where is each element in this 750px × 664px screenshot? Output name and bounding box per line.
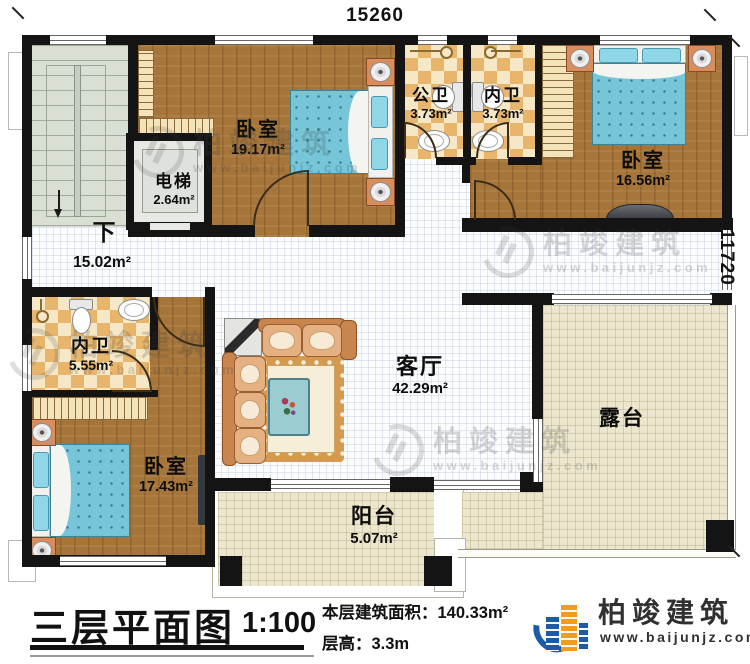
- plan-scale: 1:100: [242, 607, 316, 640]
- sofa-cushion: [234, 356, 266, 392]
- room-label-public-bath: 公卫 3.73m²: [398, 82, 464, 126]
- sink-icon: [118, 299, 150, 321]
- room-area: 19.17m²: [231, 142, 285, 159]
- window-stairs-top: [50, 35, 106, 45]
- stair-center-rail: [74, 65, 81, 217]
- wall-bedroom2-entry: [462, 157, 470, 183]
- wall-terrace-top-a: [462, 293, 554, 305]
- sofa-cushion: [262, 324, 302, 357]
- room-name: 公卫: [412, 86, 450, 106]
- toilet-icon: [64, 299, 96, 335]
- room-area: 15.02m²: [73, 254, 131, 272]
- room-area: 5.55m²: [69, 357, 113, 374]
- wall-bath-bottom-a: [395, 157, 404, 165]
- brand-logo: 柏竣建筑 www.baijunjz.com: [534, 591, 744, 657]
- pillow: [33, 452, 49, 488]
- outer-wall-right: [722, 35, 732, 230]
- room-name: 内卫: [484, 86, 522, 106]
- balcony-pillar-right: [424, 556, 452, 586]
- wall-living-terrace: [532, 305, 543, 419]
- sofa-cushion: [302, 324, 342, 357]
- room-label-bedroom1: 卧室 19.17m²: [196, 116, 320, 162]
- wall-bedroom3-right: [205, 287, 215, 567]
- window-living-south-b: [434, 480, 520, 490]
- stair-down-arrow-icon: [54, 209, 62, 218]
- room-area: 16.56m²: [616, 173, 670, 190]
- flower-decor: [278, 394, 298, 418]
- room-name: 卧室: [236, 119, 280, 143]
- window-public-bath-top: [418, 35, 447, 45]
- nightstand: [366, 58, 395, 86]
- pillow: [371, 138, 388, 170]
- bed-sheet: [348, 91, 368, 173]
- room-label-bedroom2: 卧室 16.56m²: [598, 148, 688, 192]
- room-label-living: 客厅 42.29m²: [380, 352, 460, 400]
- room-area: 5.07m²: [350, 530, 398, 548]
- towel-ring-icon: [440, 46, 453, 59]
- room-label-terrace: 露台: [578, 404, 666, 434]
- nightstand: [566, 45, 594, 72]
- wall-living-south-pillar: [390, 477, 434, 492]
- terrace-floor-ext: [462, 492, 543, 551]
- wall-bedroom1-south-a: [128, 225, 255, 237]
- window-bedroom1-top: [215, 35, 313, 45]
- window-terrace-top: [552, 294, 712, 304]
- light-fixture-icon: [36, 310, 49, 323]
- room-area: 42.29m²: [392, 380, 448, 398]
- towel-bar: [410, 50, 442, 52]
- room-area: 3.73m²: [410, 106, 451, 121]
- room-area: 2.64m²: [153, 192, 194, 207]
- stairs-down-label: 下: [88, 219, 122, 247]
- window-hall-left: [22, 237, 32, 279]
- room-label-hallway: 15.02m²: [52, 252, 152, 274]
- brand-website: www.baijunjz.com: [600, 629, 750, 645]
- toilet-bowl: [72, 307, 91, 334]
- dimension-top: 15260: [305, 5, 445, 27]
- room-label-elevator: 电梯 2.64m²: [138, 170, 210, 210]
- window-ensuite-left: [22, 345, 32, 391]
- floor-height-text: 层高：3.3m: [322, 630, 409, 654]
- terrace-bottom-railing: [458, 549, 736, 558]
- floor-plan-page: 15260 11720 卧室 19.17m² 电梯 2.64m² 公卫 3.73…: [0, 0, 750, 664]
- balcony-pillar-left: [220, 556, 242, 586]
- nightstand: [688, 45, 716, 72]
- window-bedroom2-top: [600, 35, 690, 45]
- room-name: 内卫: [71, 336, 111, 357]
- wall-bath-bottom-b: [436, 157, 476, 165]
- bed-bedroom2: [592, 45, 686, 145]
- wall-bath-bottom-c: [508, 157, 542, 165]
- stair-arrow-stem: [58, 190, 60, 210]
- window-ensuite-top: [488, 35, 517, 45]
- nightstand: [28, 419, 56, 446]
- wall-living-south-a: [205, 478, 271, 491]
- room-name: 客厅: [396, 354, 444, 380]
- plan-title: 三层平面图: [30, 597, 235, 652]
- floor-area-text: 本层建筑面积：140.33m²: [322, 599, 508, 623]
- room-name: 阳台: [351, 505, 397, 530]
- room-area: 17.43m²: [139, 479, 193, 496]
- wall-hall-ensuite-left: [22, 287, 152, 297]
- room-label-bedroom3: 卧室 17.43m²: [118, 453, 214, 499]
- elevator-door-gap: [150, 223, 190, 230]
- window-living-terrace: [533, 419, 543, 482]
- room-name: 电梯: [155, 172, 193, 192]
- wall-bath-bedroom2: [535, 45, 542, 159]
- corner-tv-cabinet: [224, 318, 262, 356]
- bed-bedroom3: [30, 444, 130, 537]
- title-underline-thick: [30, 645, 304, 650]
- light-cord: [40, 299, 42, 310]
- dimension-tick: [12, 7, 25, 20]
- sofa-arm-right: [340, 320, 357, 360]
- window-bedroom3-bottom: [60, 556, 166, 566]
- down-text: 下: [93, 219, 118, 246]
- pillow: [599, 48, 638, 63]
- sofa-cushion: [234, 428, 266, 464]
- pillow: [371, 96, 388, 128]
- room-name: 露台: [599, 407, 645, 432]
- towel-bar: [491, 50, 521, 52]
- towel-ring-icon: [484, 46, 497, 59]
- room-area: 3.73m²: [482, 106, 523, 121]
- wardrobe-bedroom1-vert: [138, 50, 154, 118]
- bed-sheet: [593, 64, 685, 79]
- room-label-ensuite-top: 内卫 3.73m²: [470, 82, 536, 126]
- room-name: 卧室: [621, 150, 665, 174]
- room-label-ensuite-left: 内卫 5.55m²: [56, 334, 126, 376]
- wall-bedroom2-south: [462, 218, 733, 232]
- wall-bedroom1-south-b: [309, 225, 405, 237]
- brand-name: 柏竣建筑: [598, 591, 734, 631]
- pillow: [33, 495, 49, 531]
- room-name: 卧室: [144, 456, 188, 480]
- brand-building-icon: [546, 615, 559, 651]
- brand-building-icon: [579, 621, 588, 651]
- exterior-ledge: [734, 56, 748, 136]
- nightstand: [366, 178, 395, 206]
- dimension-tick: [704, 9, 717, 22]
- brand-building-icon: [561, 603, 577, 651]
- dimension-right: 11720: [715, 229, 737, 309]
- window-living-south-a: [271, 479, 390, 489]
- room-label-balcony: 阳台 5.07m²: [318, 504, 430, 548]
- wardrobe-bedroom3: [32, 397, 148, 420]
- sofa-cushion: [234, 392, 266, 428]
- title-underline-thin: [30, 655, 314, 657]
- pillow: [642, 48, 681, 63]
- outer-wall-left: [22, 35, 32, 567]
